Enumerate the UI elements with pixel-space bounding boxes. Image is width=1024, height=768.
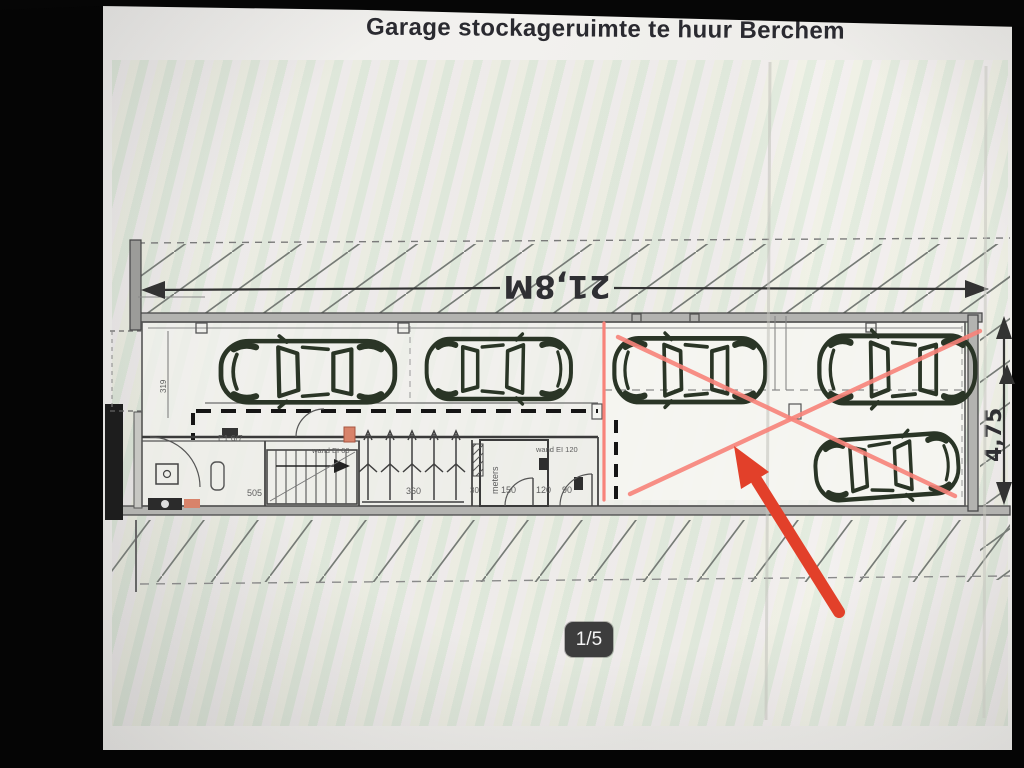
- floor-plan-photo[interactable]: [112, 60, 1008, 726]
- image-counter-badge: 1/5: [565, 622, 613, 657]
- photo-viewer-page: Garage stockageruimte te huur Berchem: [103, 6, 1012, 750]
- image-counter-text: 1/5: [576, 629, 602, 651]
